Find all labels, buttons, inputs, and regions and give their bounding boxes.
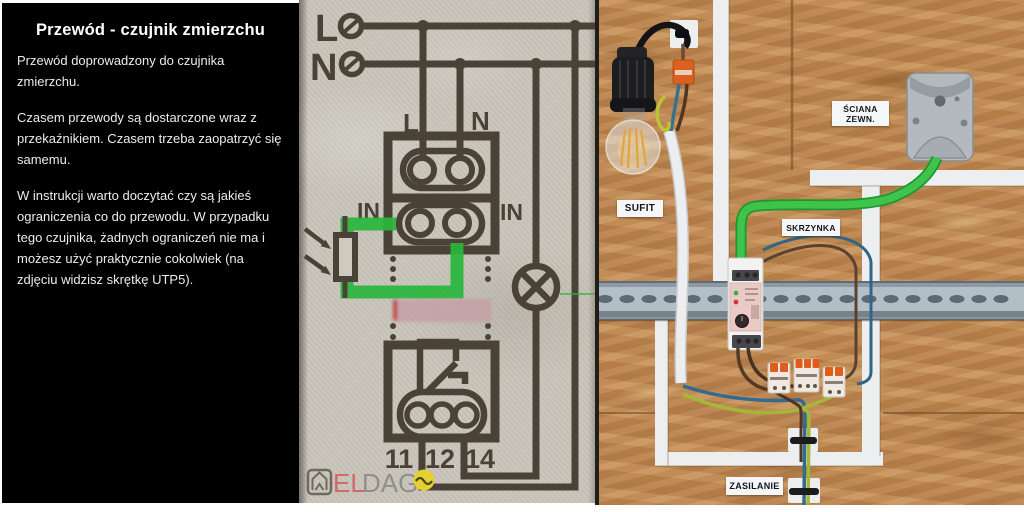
n-screw-terminal-icon bbox=[342, 54, 363, 75]
label-wall: ŚCIANA ZEWN. bbox=[832, 101, 889, 126]
eldago-watermark: EL DAG bbox=[308, 468, 435, 498]
lesson-paragraph: W instrukcji warto doczytać czy są jakie… bbox=[17, 185, 284, 290]
in-right-label: IN bbox=[500, 199, 523, 225]
label-junction-box: SKRZYNKA bbox=[782, 219, 840, 236]
relay-n-label: N bbox=[471, 106, 490, 136]
relay-red-led bbox=[734, 300, 739, 305]
cable-clip bbox=[675, 29, 689, 38]
twilight-relay-module bbox=[728, 258, 763, 350]
photo-panel: ŚCIANA ZEWN. SUFIT SKRZYNKA ZASILANIE bbox=[595, 0, 1024, 505]
ceiling-connection bbox=[657, 44, 694, 131]
relay-green-led bbox=[734, 291, 739, 296]
dusk-sensor bbox=[907, 73, 973, 161]
relay-l-label: L bbox=[403, 108, 419, 138]
contact-14-label: 14 bbox=[465, 444, 495, 474]
page-title: Przewód - czujnik zmierzchu bbox=[17, 21, 284, 40]
lesson-text-panel: Przewód - czujnik zmierzchu Przewód dopr… bbox=[2, 3, 299, 503]
photoresistor-icon bbox=[305, 216, 355, 298]
label-ceiling: SUFIT bbox=[617, 200, 663, 217]
wago-connector bbox=[794, 359, 820, 392]
label-line-l: L bbox=[315, 8, 338, 50]
wago-connectors bbox=[768, 359, 845, 397]
l-screw-terminal-icon bbox=[341, 16, 362, 37]
relay-contact-block bbox=[388, 342, 495, 438]
wiring-diagram-panel: L N L N IN IN bbox=[299, 0, 595, 503]
sensor-eye-icon bbox=[935, 96, 946, 107]
schematic-drawing: L N L N IN IN bbox=[299, 0, 595, 503]
wago-connector bbox=[823, 367, 845, 397]
lesson-paragraph: Przewód doprowadzony do czujnika zmierzc… bbox=[17, 50, 284, 92]
installation-photo bbox=[599, 0, 1024, 505]
watermark-el: EL bbox=[333, 468, 365, 498]
relay-input-block bbox=[388, 136, 495, 250]
filament-bulb bbox=[606, 108, 660, 174]
lamp-icon bbox=[515, 266, 557, 308]
watermark-dag: DAG bbox=[362, 468, 418, 498]
label-power-supply: ZASILANIE bbox=[726, 477, 783, 495]
wago-connector bbox=[768, 363, 790, 393]
redaction-blur bbox=[393, 299, 491, 322]
din-rail bbox=[599, 282, 1024, 320]
label-neutral-n: N bbox=[310, 47, 337, 89]
earth-wire bbox=[657, 96, 669, 130]
contact-12-label: 12 bbox=[425, 444, 455, 474]
white-sleeve-cable bbox=[669, 131, 683, 383]
page: Przewód - czujnik zmierzchu Przewód dopr… bbox=[0, 0, 1024, 512]
in-screws bbox=[408, 211, 469, 235]
lesson-paragraph: Czasem przewody są dostarczone wraz z pr… bbox=[17, 107, 284, 170]
